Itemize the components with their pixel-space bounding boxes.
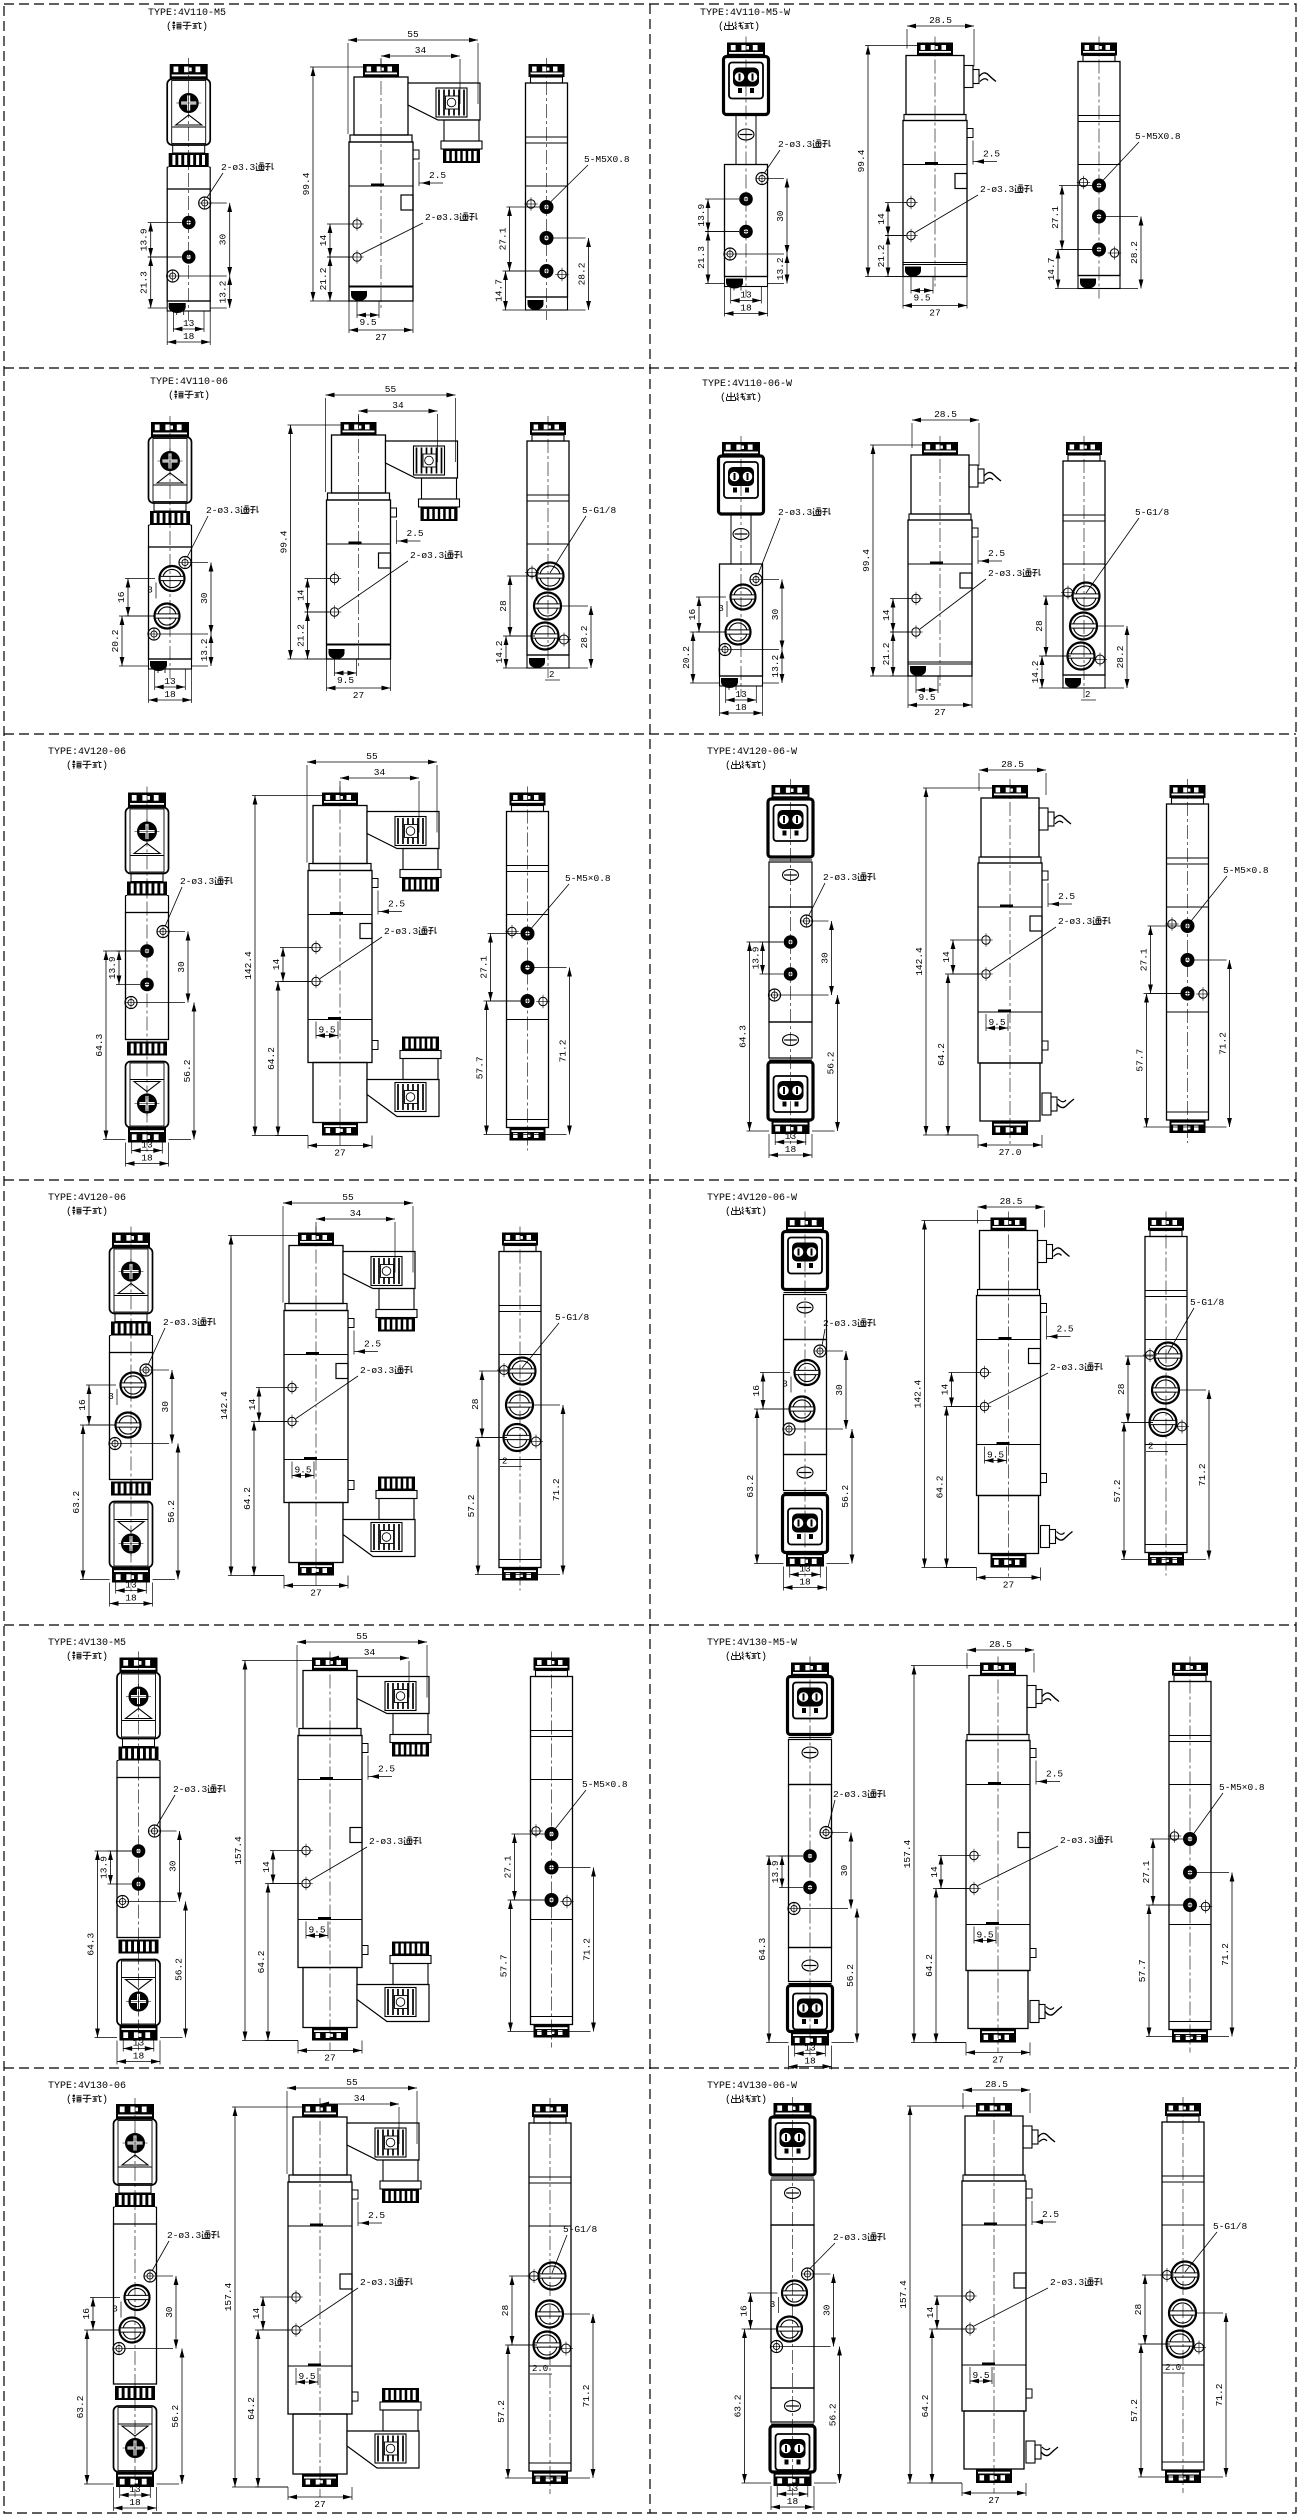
svg-text:2.5: 2.5 (1042, 2209, 1059, 2220)
svg-text:(: ( (725, 760, 731, 772)
svg-text:13.9: 13.9 (696, 204, 707, 227)
svg-text:28.5: 28.5 (1001, 759, 1024, 770)
svg-text:2.5: 2.5 (988, 548, 1005, 559)
svg-text:13: 13 (183, 318, 195, 329)
svg-text:2.5: 2.5 (364, 1339, 381, 1350)
svg-text:TYPE:4V120-06: TYPE:4V120-06 (48, 747, 126, 758)
svg-text:13.9: 13.9 (139, 228, 150, 251)
svg-text:2-ø3.3: 2-ø3.3 (823, 1318, 858, 1329)
svg-text:34: 34 (392, 400, 404, 411)
svg-text:2.5: 2.5 (1046, 1769, 1063, 1780)
svg-text:56.2: 56.2 (845, 1964, 856, 1987)
svg-text:30: 30 (775, 210, 786, 222)
svg-text:28.2: 28.2 (579, 625, 590, 648)
svg-text:157.4: 157.4 (223, 2282, 234, 2311)
svg-text:13: 13 (164, 676, 176, 687)
svg-text:64.2: 64.2 (936, 1043, 947, 1066)
svg-text:3: 3 (108, 1391, 114, 1402)
svg-text:28.5: 28.5 (929, 15, 952, 26)
svg-text:27: 27 (314, 2499, 325, 2510)
svg-text:27: 27 (334, 1148, 345, 1159)
svg-text:2-ø3.3: 2-ø3.3 (823, 872, 858, 883)
svg-text:3: 3 (770, 2299, 776, 2310)
svg-text:16: 16 (739, 2305, 750, 2317)
svg-text:99.4: 99.4 (301, 172, 312, 195)
svg-text:18: 18 (164, 689, 176, 700)
svg-text:28: 28 (1034, 620, 1045, 632)
svg-text:14: 14 (929, 1866, 940, 1878)
svg-text:30: 30 (164, 2306, 175, 2318)
svg-text:28: 28 (498, 600, 509, 612)
svg-text:27.1: 27.1 (479, 956, 490, 979)
svg-text:27: 27 (375, 332, 386, 343)
svg-text:13: 13 (125, 1580, 137, 1591)
svg-text:64.2: 64.2 (256, 1950, 267, 1973)
svg-text:20.2: 20.2 (110, 629, 121, 652)
svg-text:30: 30 (834, 1384, 845, 1396)
svg-text:30: 30 (839, 1865, 850, 1877)
svg-text:27.1: 27.1 (498, 227, 509, 250)
svg-text:63.2: 63.2 (75, 2395, 86, 2418)
svg-text:71.2: 71.2 (558, 1039, 569, 1062)
svg-text:2.0: 2.0 (532, 2364, 548, 2374)
svg-text:): ) (102, 2094, 108, 2106)
svg-text:27: 27 (1003, 1580, 1014, 1591)
svg-text:14: 14 (296, 589, 307, 601)
svg-text:2-ø3.3: 2-ø3.3 (410, 550, 445, 561)
svg-text:56.2: 56.2 (166, 1500, 177, 1523)
svg-text:56.2: 56.2 (174, 1958, 185, 1981)
svg-text:18: 18 (735, 702, 747, 713)
svg-text:5-M5X0.8: 5-M5X0.8 (584, 154, 630, 165)
svg-text:63.2: 63.2 (71, 1491, 82, 1514)
svg-text:2: 2 (549, 670, 554, 680)
svg-text:(: ( (720, 392, 726, 404)
svg-text:34: 34 (350, 1208, 362, 1219)
svg-text:9.5: 9.5 (308, 1925, 325, 1936)
svg-text:5-M5×0.8: 5-M5×0.8 (1223, 865, 1269, 876)
svg-text:71.2: 71.2 (1214, 2383, 1225, 2406)
svg-text:13.9: 13.9 (99, 1856, 110, 1879)
svg-text:13.2: 13.2 (775, 257, 786, 280)
svg-text:2-ø3.3: 2-ø3.3 (360, 1365, 395, 1376)
svg-text:14.7: 14.7 (1046, 258, 1057, 281)
svg-text:57.2: 57.2 (1112, 1479, 1123, 1502)
svg-text:18: 18 (183, 331, 195, 342)
svg-text:3: 3 (782, 1379, 788, 1390)
svg-text:16: 16 (751, 1385, 762, 1397)
svg-text:TYPE:4V110-M5-W: TYPE:4V110-M5-W (700, 8, 790, 19)
svg-text:13: 13 (129, 2484, 141, 2495)
svg-text:99.4: 99.4 (856, 149, 867, 172)
svg-text:21.2: 21.2 (296, 624, 307, 647)
svg-text:2-ø3.3: 2-ø3.3 (1060, 1835, 1095, 1846)
svg-text:3: 3 (718, 603, 724, 614)
svg-text:56.2: 56.2 (826, 1051, 837, 1074)
svg-text:56.2: 56.2 (170, 2405, 181, 2428)
svg-text:2-ø3.3: 2-ø3.3 (1050, 1362, 1085, 1373)
svg-text:5-M5X0.8: 5-M5X0.8 (1135, 131, 1181, 142)
svg-text:2-ø3.3: 2-ø3.3 (1050, 2277, 1085, 2288)
svg-text:28.2: 28.2 (577, 262, 588, 285)
svg-text:18: 18 (804, 2056, 816, 2067)
svg-text:13.9: 13.9 (107, 956, 118, 979)
svg-text:(: ( (166, 21, 172, 33)
svg-text:27: 27 (310, 1588, 321, 1599)
svg-text:2-ø3.3: 2-ø3.3 (980, 184, 1015, 195)
svg-text:14: 14 (876, 213, 887, 225)
svg-text:2-ø3.3: 2-ø3.3 (360, 2277, 395, 2288)
svg-text:142.4: 142.4 (914, 947, 925, 976)
svg-text:): ) (102, 760, 108, 772)
svg-text:2-ø3.3: 2-ø3.3 (384, 926, 419, 937)
svg-text:55: 55 (407, 29, 419, 40)
svg-text:5-G1/8: 5-G1/8 (582, 505, 617, 516)
svg-text:34: 34 (374, 767, 386, 778)
svg-text:2-ø3.3: 2-ø3.3 (221, 162, 256, 173)
svg-text:13: 13 (785, 1131, 797, 1142)
svg-text:9.5: 9.5 (976, 1930, 993, 1941)
svg-text:2-ø3.3: 2-ø3.3 (167, 2230, 202, 2241)
svg-text:(: ( (66, 760, 72, 772)
svg-text:5-M5×0.8: 5-M5×0.8 (582, 1779, 628, 1790)
svg-text:2-ø3.3: 2-ø3.3 (833, 2232, 868, 2243)
svg-text:71.2: 71.2 (551, 1478, 562, 1501)
svg-text:63.2: 63.2 (745, 1475, 756, 1498)
svg-text:55: 55 (342, 1192, 354, 1203)
svg-text:9.5: 9.5 (972, 2370, 989, 2381)
svg-text:5-G1/8: 5-G1/8 (1190, 1297, 1225, 1308)
svg-text:64.3: 64.3 (94, 1034, 105, 1057)
svg-text:21.2: 21.2 (318, 267, 329, 290)
svg-text:9.5: 9.5 (987, 1450, 1004, 1461)
svg-text:55: 55 (356, 1631, 368, 1642)
svg-text:30: 30 (160, 1401, 171, 1413)
svg-text:27: 27 (988, 2495, 999, 2506)
svg-text:2.5: 2.5 (1057, 1324, 1074, 1335)
svg-text:55: 55 (366, 751, 378, 762)
svg-text:157.4: 157.4 (902, 1839, 913, 1868)
svg-text:64.3: 64.3 (738, 1025, 749, 1048)
svg-text:157.4: 157.4 (898, 2280, 909, 2309)
svg-text:2.5: 2.5 (378, 1764, 395, 1775)
svg-text:16: 16 (687, 609, 698, 621)
svg-text:30: 30 (822, 2304, 833, 2316)
svg-text:2-ø3.3: 2-ø3.3 (1058, 916, 1093, 927)
svg-text:2-ø3.3: 2-ø3.3 (173, 1784, 208, 1795)
svg-text:(: ( (66, 1651, 72, 1663)
svg-text:14: 14 (925, 2307, 936, 2319)
svg-text:TYPE:4V110-M5: TYPE:4V110-M5 (148, 8, 226, 19)
svg-text:2.5: 2.5 (388, 899, 405, 910)
svg-text:5-G1/8: 5-G1/8 (1135, 507, 1170, 518)
svg-text:14: 14 (271, 959, 282, 971)
svg-text:13: 13 (141, 1140, 153, 1151)
svg-text:55: 55 (346, 2077, 358, 2088)
svg-text:57.7: 57.7 (1135, 1049, 1146, 1072)
svg-text:2-ø3.3: 2-ø3.3 (988, 568, 1023, 579)
svg-text:(: ( (725, 1651, 731, 1663)
svg-text:9.5: 9.5 (318, 1025, 335, 1036)
svg-text:71.2: 71.2 (582, 1938, 593, 1961)
svg-text:5-G1/8: 5-G1/8 (1213, 2221, 1248, 2232)
svg-text:2-ø3.3: 2-ø3.3 (778, 507, 813, 518)
svg-text:9.5: 9.5 (913, 293, 930, 304)
svg-text:30: 30 (770, 609, 781, 621)
svg-text:2.0: 2.0 (1165, 2363, 1181, 2373)
svg-text:28: 28 (1116, 1383, 1127, 1395)
svg-text:28: 28 (470, 1398, 481, 1410)
svg-text:28.5: 28.5 (989, 1639, 1012, 1650)
svg-text:14: 14 (251, 2308, 262, 2320)
svg-text:13: 13 (799, 1564, 811, 1575)
svg-text:14: 14 (941, 951, 952, 963)
svg-text:2-ø3.3: 2-ø3.3 (180, 876, 215, 887)
svg-text:13.9: 13.9 (751, 946, 762, 969)
svg-text:5-G1/8: 5-G1/8 (555, 1312, 590, 1323)
svg-text:TYPE:4V110-06: TYPE:4V110-06 (150, 377, 228, 388)
svg-text:): ) (204, 390, 210, 402)
svg-text:142.4: 142.4 (913, 1379, 924, 1408)
svg-text:57.2: 57.2 (466, 1494, 477, 1517)
svg-text:57.7: 57.7 (499, 1954, 510, 1977)
svg-text:71.2: 71.2 (1220, 1943, 1231, 1966)
svg-text:27.1: 27.1 (1050, 206, 1061, 229)
svg-text:27: 27 (934, 707, 945, 718)
svg-text:18: 18 (129, 2497, 141, 2508)
svg-text:14.2: 14.2 (1030, 660, 1041, 683)
svg-text:56.2: 56.2 (182, 1059, 193, 1082)
svg-text:TYPE:4V120-06-W: TYPE:4V120-06-W (707, 747, 797, 758)
svg-text:2.5: 2.5 (368, 2210, 385, 2221)
svg-text:18: 18 (785, 1144, 797, 1155)
svg-text:9.5: 9.5 (359, 317, 376, 328)
svg-text:(: ( (725, 1206, 731, 1218)
svg-text:): ) (761, 760, 767, 772)
svg-text:28.5: 28.5 (985, 2079, 1008, 2090)
svg-text:27: 27 (324, 2053, 335, 2064)
svg-text:13: 13 (133, 2038, 145, 2049)
svg-text:2: 2 (502, 1457, 507, 1467)
svg-text:18: 18 (133, 2051, 145, 2062)
svg-text:21.2: 21.2 (881, 642, 892, 665)
svg-text:64.2: 64.2 (242, 1487, 253, 1510)
svg-text:30: 30 (168, 1860, 179, 1872)
svg-text:2: 2 (1085, 690, 1090, 700)
svg-text:18: 18 (799, 1577, 811, 1588)
svg-text:99.4: 99.4 (279, 530, 290, 553)
svg-text:14: 14 (247, 1399, 258, 1411)
svg-text:21.2: 21.2 (876, 244, 887, 267)
svg-text:64.2: 64.2 (935, 1475, 946, 1498)
svg-text:21.3: 21.3 (696, 246, 707, 269)
svg-text:): ) (761, 1651, 767, 1663)
svg-text:3: 3 (112, 2304, 118, 2315)
svg-text:30: 30 (176, 961, 187, 973)
svg-text:): ) (202, 21, 208, 33)
svg-text:71.2: 71.2 (1197, 1463, 1208, 1486)
svg-text:TYPE:4V120-06: TYPE:4V120-06 (48, 1193, 126, 1204)
svg-text:55: 55 (385, 384, 397, 395)
svg-text:9.5: 9.5 (294, 1465, 311, 1476)
svg-text:): ) (756, 392, 762, 404)
svg-text:57.2: 57.2 (1129, 2399, 1140, 2422)
svg-text:64.2: 64.2 (246, 2397, 257, 2420)
svg-text:9.5: 9.5 (337, 675, 354, 686)
svg-text:157.4: 157.4 (233, 1836, 244, 1865)
svg-text:13.2: 13.2 (770, 655, 781, 678)
svg-text:57.7: 57.7 (475, 1056, 486, 1079)
svg-text:30: 30 (199, 592, 210, 604)
svg-text:28.2: 28.2 (1129, 241, 1140, 264)
svg-text:): ) (761, 1206, 767, 1218)
svg-text:2.5: 2.5 (1058, 891, 1075, 902)
svg-text:21.3: 21.3 (139, 271, 150, 294)
svg-text:27: 27 (992, 2055, 1003, 2066)
svg-text:2-ø3.3: 2-ø3.3 (425, 212, 460, 223)
svg-text:71.2: 71.2 (1218, 1032, 1229, 1055)
svg-text:71.2: 71.2 (581, 2384, 592, 2407)
svg-text:TYPE:4V110-06-W: TYPE:4V110-06-W (702, 379, 792, 390)
svg-text:64.2: 64.2 (266, 1047, 277, 1070)
svg-text:30: 30 (820, 952, 831, 964)
svg-text:14.7: 14.7 (494, 279, 505, 302)
svg-text:13: 13 (735, 689, 747, 700)
svg-text:(: ( (66, 1206, 72, 1218)
svg-text:30: 30 (218, 234, 229, 246)
svg-text:27.1: 27.1 (1139, 948, 1150, 971)
svg-text:13.2: 13.2 (218, 280, 229, 303)
svg-text:2-ø3.3: 2-ø3.3 (206, 505, 241, 516)
svg-text:27.1: 27.1 (503, 1855, 514, 1878)
svg-text:2-ø3.3: 2-ø3.3 (369, 1836, 404, 1847)
svg-text:142.4: 142.4 (243, 951, 254, 980)
svg-text:): ) (102, 1206, 108, 1218)
svg-text:63.2: 63.2 (733, 2394, 744, 2417)
svg-text:64.2: 64.2 (924, 1954, 935, 1977)
svg-text:57.2: 57.2 (496, 2400, 507, 2423)
svg-text:64.3: 64.3 (757, 1938, 768, 1961)
svg-text:9.5: 9.5 (918, 692, 935, 703)
svg-text:2.5: 2.5 (429, 170, 446, 181)
svg-text:14.2: 14.2 (494, 640, 505, 663)
svg-text:18: 18 (787, 2496, 799, 2507)
svg-text:16: 16 (77, 1399, 88, 1411)
svg-text:13.2: 13.2 (199, 638, 210, 661)
svg-text:16: 16 (116, 591, 127, 603)
svg-text:(: ( (66, 2094, 72, 2106)
svg-text:(: ( (725, 2094, 731, 2106)
svg-text:18: 18 (740, 303, 752, 314)
svg-text:28.5: 28.5 (1000, 1196, 1023, 1207)
svg-text:64.2: 64.2 (920, 2394, 931, 2417)
svg-text:2.5: 2.5 (983, 149, 1000, 160)
svg-text:(: ( (168, 390, 174, 402)
svg-text:34: 34 (354, 2093, 366, 2104)
svg-text:13: 13 (740, 290, 752, 301)
svg-text:9.5: 9.5 (988, 1017, 1005, 1028)
svg-text:27.1: 27.1 (1141, 1860, 1152, 1883)
svg-text:99.4: 99.4 (861, 549, 872, 572)
svg-text:28.2: 28.2 (1115, 645, 1126, 668)
svg-text:2-ø3.3: 2-ø3.3 (778, 139, 813, 150)
svg-text:18: 18 (141, 1153, 153, 1164)
svg-text:13.9: 13.9 (770, 1860, 781, 1883)
svg-text:9.5: 9.5 (298, 2371, 315, 2382)
svg-text:14: 14 (261, 1861, 272, 1873)
svg-text:TYPE:4V120-06-W: TYPE:4V120-06-W (707, 1193, 797, 1204)
svg-text:2-ø3.3: 2-ø3.3 (833, 1789, 868, 1800)
svg-text:13: 13 (787, 2483, 799, 2494)
svg-text:13: 13 (804, 2043, 816, 2054)
svg-text:27.0: 27.0 (999, 1147, 1022, 1158)
svg-text:27: 27 (929, 308, 940, 319)
svg-text:2.5: 2.5 (407, 528, 424, 539)
svg-text:64.3: 64.3 (86, 1933, 97, 1956)
svg-text:34: 34 (364, 1647, 376, 1658)
svg-text:2: 2 (1148, 1442, 1153, 1452)
svg-text:TYPE:4V130-06-W: TYPE:4V130-06-W (707, 2081, 797, 2092)
svg-text:57.7: 57.7 (1137, 1959, 1148, 1982)
svg-text:28.5: 28.5 (934, 409, 957, 420)
svg-text:27: 27 (353, 690, 364, 701)
svg-text:28: 28 (1133, 2304, 1144, 2316)
svg-text:TYPE:4V130-06: TYPE:4V130-06 (48, 2081, 126, 2092)
svg-text:56.2: 56.2 (828, 2403, 839, 2426)
svg-text:14: 14 (318, 235, 329, 247)
svg-text:142.4: 142.4 (219, 1391, 230, 1420)
svg-text:5-M5×0.8: 5-M5×0.8 (565, 873, 611, 884)
svg-text:16: 16 (81, 2308, 92, 2320)
svg-text:5-G1/8: 5-G1/8 (563, 2224, 598, 2235)
svg-text:2-ø3.3: 2-ø3.3 (163, 1317, 198, 1328)
svg-text:TYPE:4V130-M5: TYPE:4V130-M5 (48, 1638, 126, 1649)
svg-text:): ) (754, 21, 760, 33)
svg-text:5-M5×0.8: 5-M5×0.8 (1219, 1782, 1265, 1793)
svg-text:): ) (102, 1651, 108, 1663)
svg-text:(: ( (718, 21, 724, 33)
svg-text:18: 18 (125, 1593, 137, 1604)
svg-text:56.2: 56.2 (840, 1485, 851, 1508)
svg-text:34: 34 (415, 45, 427, 56)
svg-text:14: 14 (881, 609, 892, 621)
svg-text:14: 14 (940, 1384, 951, 1396)
svg-text:TYPE:4V130-M5-W: TYPE:4V130-M5-W (707, 1638, 797, 1649)
svg-text:): ) (761, 2094, 767, 2106)
svg-text:28: 28 (500, 2305, 511, 2317)
svg-text:20.2: 20.2 (681, 646, 692, 669)
svg-text:3: 3 (147, 585, 153, 596)
